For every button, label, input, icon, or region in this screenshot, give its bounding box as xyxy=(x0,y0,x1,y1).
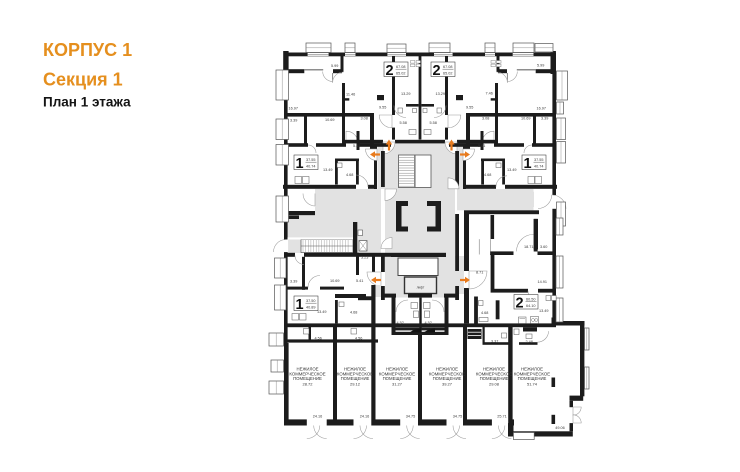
svg-text:5.41: 5.41 xyxy=(353,144,360,148)
svg-text:10.69: 10.69 xyxy=(521,117,531,121)
svg-text:ПОМЕЩЕНИЕ: ПОМЕЩЕНИЕ xyxy=(433,376,462,381)
svg-text:4.56: 4.56 xyxy=(315,337,322,341)
svg-text:18.71: 18.71 xyxy=(524,245,534,249)
svg-text:2: 2 xyxy=(516,296,524,312)
svg-text:4.52: 4.52 xyxy=(397,321,404,325)
svg-text:60.50: 60.50 xyxy=(526,298,536,302)
svg-text:2: 2 xyxy=(386,63,394,79)
svg-text:КОРПУС 1: КОРПУС 1 xyxy=(43,40,132,60)
svg-text:4.68: 4.68 xyxy=(346,173,353,177)
svg-text:5.41: 5.41 xyxy=(356,279,363,283)
svg-text:3.39: 3.39 xyxy=(541,117,548,121)
svg-text:65.02: 65.02 xyxy=(396,72,406,76)
svg-text:1: 1 xyxy=(296,156,304,172)
svg-text:64.10: 64.10 xyxy=(526,304,536,308)
svg-text:ПОМЕЩЕНИЕ: ПОМЕЩЕНИЕ xyxy=(293,376,322,381)
svg-text:5.58: 5.58 xyxy=(400,121,407,125)
svg-text:4.68: 4.68 xyxy=(481,311,488,315)
svg-text:ПОМЕЩЕНИЕ: ПОМЕЩЕНИЕ xyxy=(518,376,547,381)
svg-text:13.49: 13.49 xyxy=(317,310,327,314)
svg-text:29.08: 29.08 xyxy=(489,381,500,386)
svg-text:24.16: 24.16 xyxy=(313,415,323,419)
svg-text:ПОМЕЩЕНИЕ: ПОМЕЩЕНИЕ xyxy=(480,376,509,381)
svg-text:49.06: 49.06 xyxy=(555,426,565,430)
svg-text:лифт: лифт xyxy=(417,286,425,290)
svg-text:40.89: 40.89 xyxy=(306,306,316,310)
svg-text:29.12: 29.12 xyxy=(350,381,361,386)
svg-text:3.37: 3.37 xyxy=(491,340,498,344)
svg-text:14.91: 14.91 xyxy=(538,280,548,284)
svg-text:ПОМЕЩЕНИЕ: ПОМЕЩЕНИЕ xyxy=(341,376,370,381)
svg-text:ПОМЕЩЕНИЕ: ПОМЕЩЕНИЕ xyxy=(383,376,412,381)
svg-text:65.02: 65.02 xyxy=(443,72,453,76)
svg-text:3.08: 3.08 xyxy=(361,117,368,121)
svg-text:3.39: 3.39 xyxy=(290,119,297,123)
svg-text:25.71: 25.71 xyxy=(497,415,507,419)
svg-text:11.46: 11.46 xyxy=(346,93,355,97)
svg-text:4.68: 4.68 xyxy=(484,173,491,177)
svg-text:34.75: 34.75 xyxy=(453,415,463,419)
svg-text:13.49: 13.49 xyxy=(539,309,549,313)
svg-text:9.55: 9.55 xyxy=(466,106,473,110)
svg-text:51.74: 51.74 xyxy=(527,381,538,386)
svg-text:37.50: 37.50 xyxy=(306,299,316,303)
svg-text:2: 2 xyxy=(433,63,441,79)
svg-text:13.49: 13.49 xyxy=(507,168,517,172)
svg-text:31.27: 31.27 xyxy=(392,381,403,386)
svg-text:13.29: 13.29 xyxy=(401,92,411,96)
svg-text:Секция 1: Секция 1 xyxy=(43,70,123,90)
svg-text:24.16: 24.16 xyxy=(360,415,370,419)
svg-text:16.97: 16.97 xyxy=(537,107,547,111)
svg-text:40.74: 40.74 xyxy=(306,165,316,169)
svg-text:8.71: 8.71 xyxy=(476,271,483,275)
svg-text:4.68: 4.68 xyxy=(350,311,357,315)
svg-text:5.99: 5.99 xyxy=(537,64,544,68)
svg-text:10.69: 10.69 xyxy=(330,279,340,283)
svg-text:3.08: 3.08 xyxy=(482,117,489,121)
svg-text:3.60: 3.60 xyxy=(540,245,547,249)
svg-text:3.39: 3.39 xyxy=(290,280,297,284)
svg-text:37.55: 37.55 xyxy=(534,158,544,162)
svg-text:9.55: 9.55 xyxy=(379,106,386,110)
svg-text:7.46: 7.46 xyxy=(486,92,493,96)
svg-text:28.72: 28.72 xyxy=(302,381,313,386)
svg-text:5.99: 5.99 xyxy=(331,64,338,68)
svg-text:37.55: 37.55 xyxy=(306,158,316,162)
svg-text:1: 1 xyxy=(296,297,304,313)
svg-text:5.58: 5.58 xyxy=(430,121,437,125)
svg-text:4.52: 4.52 xyxy=(425,321,432,325)
svg-text:5.41: 5.41 xyxy=(478,144,485,148)
svg-text:67.08: 67.08 xyxy=(443,65,453,69)
svg-text:34.75: 34.75 xyxy=(406,415,416,419)
svg-text:40.74: 40.74 xyxy=(534,165,544,169)
svg-text:План 1 этажа: План 1 этажа xyxy=(43,95,131,110)
svg-text:67.08: 67.08 xyxy=(396,65,406,69)
svg-text:4.56: 4.56 xyxy=(355,337,362,341)
svg-text:10.69: 10.69 xyxy=(325,118,335,122)
svg-text:39.27: 39.27 xyxy=(442,381,453,386)
svg-text:2.48: 2.48 xyxy=(526,340,533,344)
svg-text:1: 1 xyxy=(524,156,532,172)
svg-text:16.97: 16.97 xyxy=(289,107,299,111)
svg-text:3.23: 3.23 xyxy=(361,256,368,260)
svg-text:13.49: 13.49 xyxy=(323,168,333,172)
svg-text:13.29: 13.29 xyxy=(436,92,446,96)
